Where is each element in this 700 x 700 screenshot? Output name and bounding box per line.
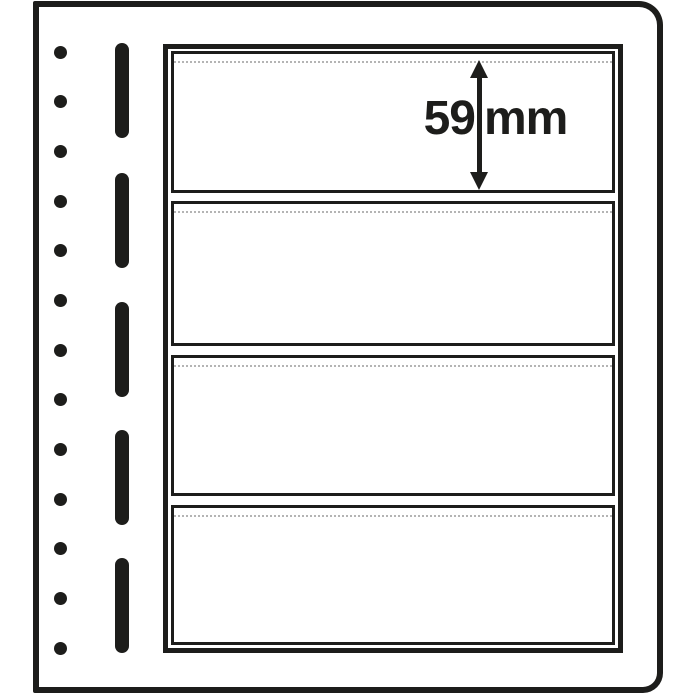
punch-hole [54, 46, 67, 59]
punch-hole [54, 294, 67, 307]
pocket-strip [171, 201, 615, 346]
dimension-value: 59 [359, 95, 475, 143]
vertical-double-arrow-icon [477, 71, 482, 181]
foil-open-edge [174, 211, 612, 213]
binding-slot [115, 302, 129, 397]
binding-slot [115, 43, 129, 138]
punch-hole [54, 393, 67, 406]
foil-open-edge [174, 515, 612, 517]
punch-hole [54, 443, 67, 456]
album-sheet: 59 mm [33, 1, 663, 693]
binding-slot [115, 558, 129, 653]
pocket-strip [171, 355, 615, 496]
punch-hole [54, 145, 67, 158]
punch-hole [54, 642, 67, 655]
product-image: 59 mm [0, 0, 700, 700]
binding-slot [115, 173, 129, 268]
punch-hole [54, 95, 67, 108]
pocket-strip [171, 505, 615, 645]
punch-hole [54, 195, 67, 208]
punch-hole [54, 493, 67, 506]
foil-open-edge [174, 61, 612, 63]
dimension-unit: mm [484, 95, 567, 143]
punch-hole [54, 592, 67, 605]
arrow-down-icon [470, 172, 488, 190]
punch-hole [54, 244, 67, 257]
binding-slot [115, 430, 129, 525]
foil-open-edge [174, 365, 612, 367]
punch-hole [54, 344, 67, 357]
punch-hole [54, 542, 67, 555]
